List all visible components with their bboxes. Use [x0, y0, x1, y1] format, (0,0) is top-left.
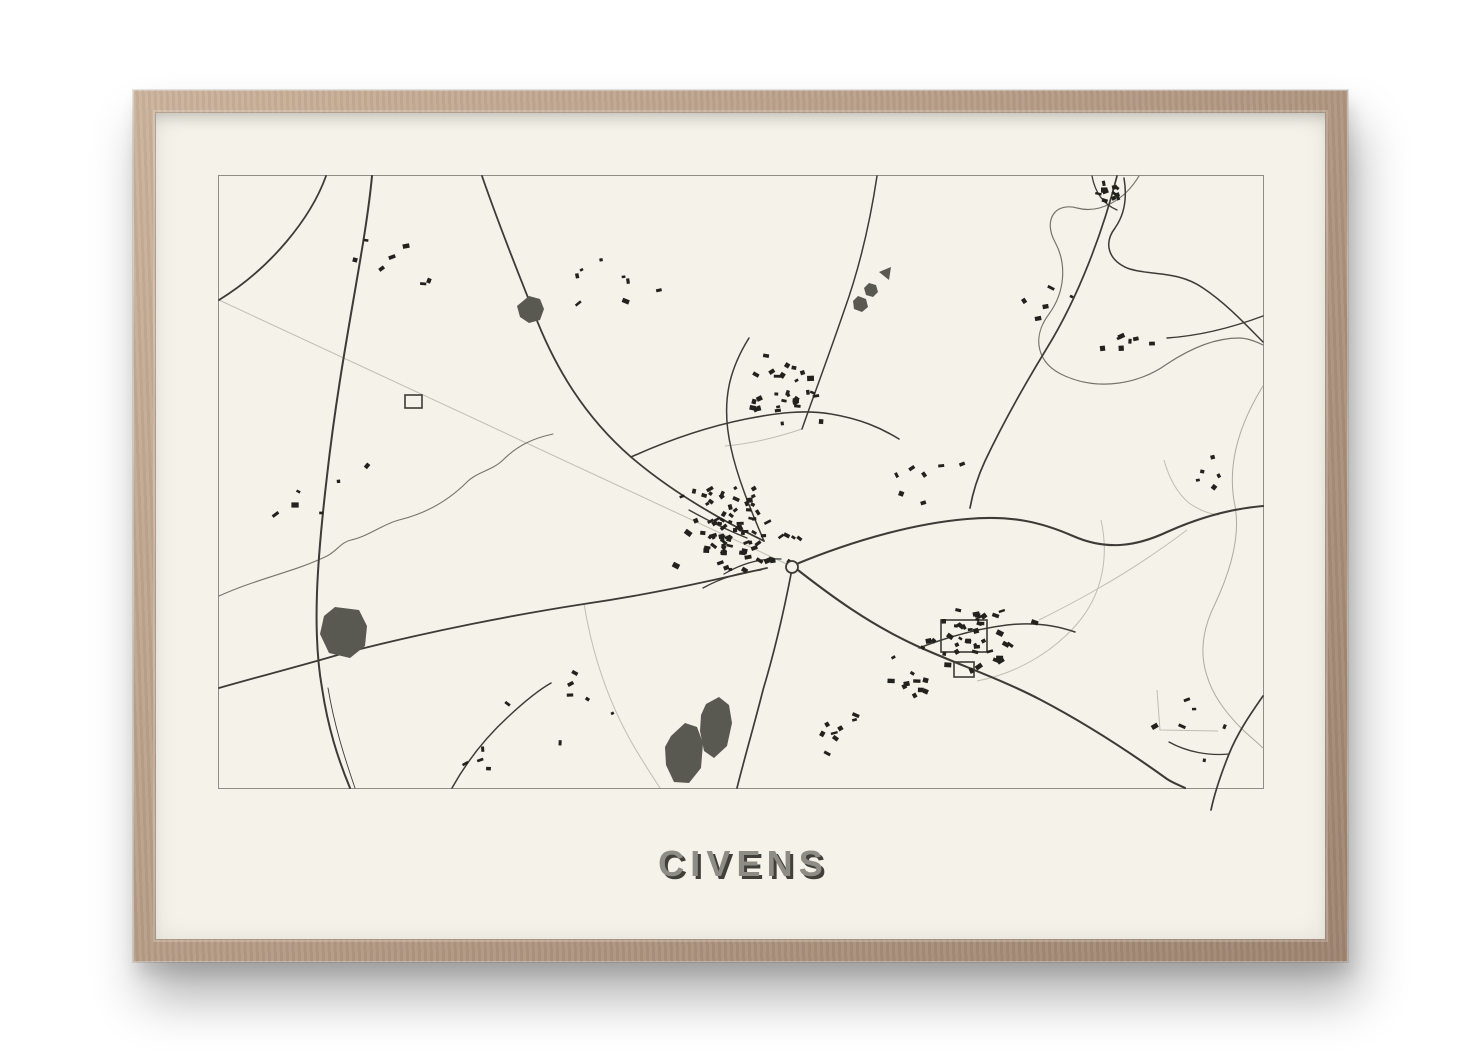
map-building	[955, 608, 961, 612]
map-building	[781, 399, 787, 403]
map-building	[599, 258, 603, 262]
map-building	[732, 508, 737, 513]
map-building	[944, 662, 951, 667]
map-building	[958, 636, 963, 640]
map-building	[777, 534, 784, 540]
map-building	[579, 268, 583, 272]
map-road	[1108, 178, 1262, 342]
map-building	[701, 493, 707, 498]
map-river	[1038, 176, 1262, 384]
wall-background: CIVENS	[0, 0, 1480, 1058]
map-building	[824, 721, 830, 727]
map-building	[903, 681, 910, 687]
map-building	[830, 731, 837, 735]
map-building	[558, 740, 561, 745]
map-building	[953, 624, 957, 627]
map-road	[219, 568, 767, 688]
map-building	[402, 243, 409, 249]
map-building	[733, 486, 737, 490]
map-building	[378, 265, 385, 271]
map-building	[890, 655, 895, 659]
map-building	[831, 735, 838, 742]
map-building	[683, 529, 692, 537]
map-building	[791, 366, 796, 370]
map-building	[486, 767, 491, 771]
map-building	[363, 462, 370, 469]
map-building	[894, 472, 899, 478]
map-building	[751, 399, 757, 405]
map-road	[452, 683, 551, 788]
map-building	[728, 513, 734, 518]
map-building	[1183, 697, 1190, 702]
map-pond	[700, 697, 732, 758]
map-building	[909, 671, 914, 676]
map-building	[708, 491, 713, 496]
map-building	[774, 392, 778, 395]
map-building	[1118, 345, 1123, 351]
map-building	[1047, 285, 1055, 291]
map-building	[1216, 473, 1221, 478]
map-building	[271, 511, 279, 518]
map-building	[887, 679, 894, 684]
map-building	[610, 711, 614, 715]
map-building	[744, 555, 752, 560]
map-building	[574, 273, 578, 279]
map-building	[794, 404, 801, 408]
map-pond	[665, 723, 703, 783]
map-building	[977, 622, 984, 626]
map-building	[691, 488, 696, 493]
map-building	[476, 758, 483, 763]
map-building	[755, 557, 763, 564]
map-building	[754, 509, 760, 515]
map-building	[991, 613, 999, 619]
map-building	[769, 559, 775, 564]
map-road	[316, 176, 371, 788]
map-building	[958, 462, 964, 467]
map-building	[920, 500, 926, 505]
map-building	[621, 275, 625, 278]
map-building	[794, 378, 799, 382]
map-building	[1195, 479, 1199, 482]
map-building	[420, 282, 426, 285]
map-building	[584, 697, 589, 702]
map-building	[783, 532, 790, 538]
map-building	[971, 650, 978, 655]
poster-frame: CIVENS	[133, 90, 1348, 962]
map-building	[780, 421, 784, 425]
map-building	[718, 534, 723, 539]
map-building	[974, 663, 982, 671]
poster-paper: CIVENS	[156, 113, 1325, 939]
map-building	[566, 693, 573, 696]
map-building	[851, 712, 859, 718]
map-building	[574, 300, 581, 306]
map-road	[919, 624, 1075, 648]
map-building	[972, 628, 978, 634]
map-building	[726, 544, 733, 548]
map-building	[783, 362, 790, 369]
map-roundabout	[786, 561, 798, 573]
map-building	[291, 502, 298, 507]
map-building	[1202, 758, 1205, 762]
map-building	[1210, 484, 1217, 491]
map-building	[908, 465, 915, 471]
map-building	[504, 701, 510, 707]
map-road	[482, 176, 764, 541]
map-building	[980, 612, 987, 619]
map-building	[913, 679, 920, 683]
map-building	[720, 511, 726, 517]
map-building	[319, 512, 323, 515]
map-building	[760, 534, 765, 537]
map-building	[1020, 298, 1026, 304]
map-building	[995, 629, 1004, 637]
map-building	[728, 568, 732, 571]
map-building	[732, 496, 740, 502]
map-path	[584, 604, 660, 788]
map-building	[1178, 723, 1186, 729]
map-building	[352, 257, 358, 262]
map-building	[727, 504, 732, 510]
map-building	[481, 746, 484, 751]
map-building	[655, 288, 661, 292]
map-building	[732, 528, 736, 532]
map-path	[1157, 690, 1218, 731]
map-building	[1210, 455, 1215, 460]
map-building	[1042, 304, 1049, 309]
map-building	[571, 670, 578, 676]
map-building	[1222, 724, 1227, 729]
map-field-outline	[405, 395, 422, 408]
map-building	[796, 535, 802, 541]
map-building	[945, 633, 953, 641]
map-building	[799, 370, 804, 375]
map-river	[219, 434, 553, 596]
map-building	[755, 395, 762, 402]
map-path	[1164, 460, 1219, 515]
map-pond	[879, 267, 891, 280]
map-building	[710, 542, 717, 549]
map-building	[762, 354, 768, 358]
map-building	[388, 254, 396, 260]
map-pond	[864, 283, 878, 297]
map-area	[218, 175, 1264, 789]
map-path	[977, 520, 1104, 681]
map-building	[1150, 723, 1158, 730]
map-building	[792, 398, 799, 403]
map-building	[805, 390, 809, 395]
map-building	[967, 628, 972, 631]
map-building	[1191, 708, 1195, 711]
map-building	[1101, 198, 1108, 203]
map-pond	[517, 296, 544, 323]
map-building	[775, 405, 779, 408]
map-road	[1169, 742, 1229, 755]
map-pond	[320, 607, 367, 658]
map-road	[794, 567, 1185, 788]
map-pond	[853, 296, 868, 312]
map-building	[938, 464, 944, 468]
map-building	[1101, 181, 1105, 187]
map-building	[745, 508, 751, 512]
map-building	[295, 489, 300, 493]
map-building	[773, 375, 780, 378]
map-building	[751, 517, 756, 520]
map-road	[794, 506, 1263, 565]
map-building	[621, 298, 629, 305]
map-building	[1034, 316, 1041, 321]
map-building	[750, 502, 755, 507]
map-path	[725, 429, 802, 446]
map-building	[819, 730, 826, 737]
map-road	[703, 570, 761, 588]
map-building	[818, 419, 823, 424]
map-building	[954, 642, 959, 647]
map-building	[1128, 339, 1132, 344]
map-building	[1099, 346, 1105, 352]
map-river	[1202, 386, 1262, 748]
title-zone: CIVENS	[156, 789, 1325, 939]
map-building	[750, 486, 756, 492]
map-building	[953, 649, 959, 655]
map-building	[336, 480, 340, 484]
map-building	[1100, 187, 1106, 192]
map-building	[736, 522, 743, 525]
map-building	[980, 638, 985, 643]
map-building	[1199, 469, 1204, 473]
map-path	[219, 300, 791, 566]
map-building	[837, 725, 843, 731]
map-building	[898, 490, 904, 496]
map-building	[1132, 336, 1138, 341]
map-building	[768, 368, 775, 375]
map-building	[716, 560, 723, 565]
map-road	[631, 412, 899, 457]
map-road	[970, 176, 1117, 508]
map-building	[671, 562, 680, 570]
map-building	[941, 619, 945, 624]
map-building	[851, 718, 856, 722]
map-building	[426, 278, 432, 284]
map-building	[763, 519, 771, 525]
poster-title: CIVENS	[652, 843, 829, 885]
map-building	[703, 548, 709, 553]
map-road	[737, 569, 792, 788]
map-road	[219, 176, 326, 300]
map-building	[807, 376, 814, 381]
map-path	[1039, 530, 1187, 620]
map-building	[921, 471, 927, 477]
map-building	[922, 677, 928, 683]
map-building	[752, 371, 759, 377]
map-building	[774, 408, 780, 412]
map-building	[1149, 342, 1155, 346]
map-building	[567, 681, 574, 687]
map-building	[626, 278, 630, 284]
map-building	[911, 693, 917, 699]
map-building	[823, 750, 830, 756]
map-building	[742, 530, 748, 533]
map-building	[942, 652, 946, 656]
map-building	[790, 535, 795, 540]
map-building	[749, 405, 756, 411]
map-canvas	[219, 176, 1263, 788]
map-building	[998, 609, 1005, 613]
map-building	[700, 531, 706, 535]
